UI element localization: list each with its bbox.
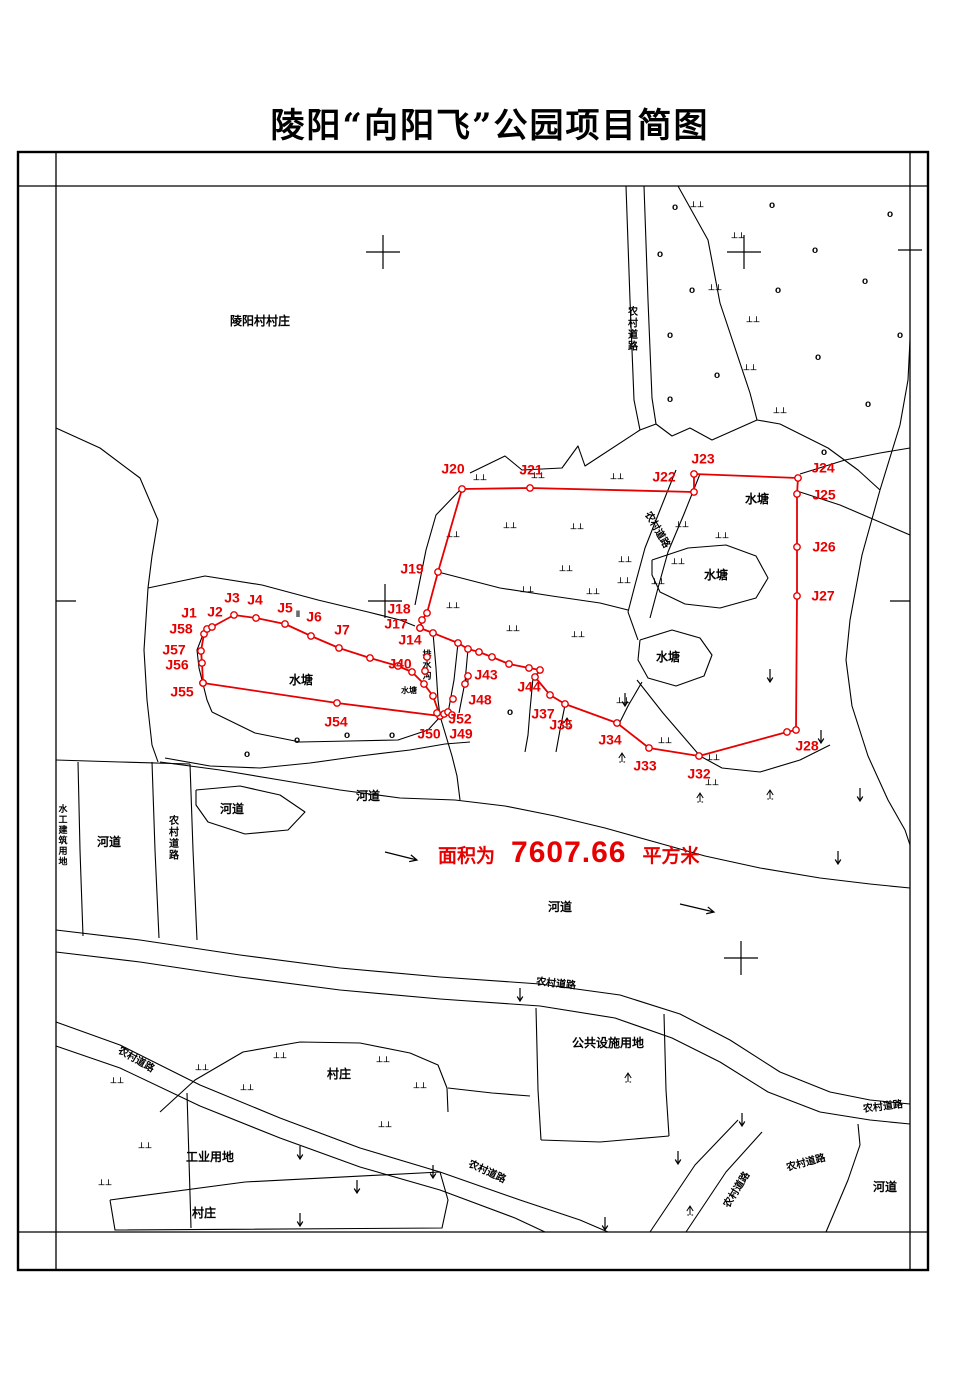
orchard-symbol: o bbox=[714, 370, 720, 381]
boundary-vertex bbox=[784, 729, 790, 735]
paddy-field-symbol: ⊥⊥ bbox=[273, 1051, 287, 1060]
point-label-J17: J17 bbox=[384, 616, 408, 632]
area-value: 7607.66 bbox=[511, 836, 626, 870]
tree-symbol bbox=[687, 1206, 693, 1215]
landuse-label-1: 水塘 bbox=[745, 491, 769, 506]
paddy-field-symbol: ⊥⊥ bbox=[413, 1081, 427, 1090]
orchard-symbol: o bbox=[657, 249, 663, 260]
boundary-vertex bbox=[489, 654, 495, 660]
point-label-J44: J44 bbox=[517, 679, 541, 695]
boundary-vertex bbox=[430, 630, 436, 636]
point-label-J7: J7 bbox=[334, 622, 350, 638]
land-boundary-line-33 bbox=[56, 930, 910, 1104]
boundary-vertex bbox=[476, 649, 482, 655]
boundary-vertex bbox=[199, 660, 205, 666]
point-label-J26: J26 bbox=[812, 539, 836, 555]
point-label-J4: J4 bbox=[247, 592, 263, 608]
land-boundary-line-38 bbox=[56, 1022, 608, 1232]
parcel-boundary-main bbox=[420, 474, 798, 756]
point-label-J49: J49 bbox=[449, 726, 473, 742]
point-label-J24: J24 bbox=[811, 460, 835, 476]
orchard-symbol: o bbox=[672, 202, 678, 213]
orchard-symbol: o bbox=[667, 394, 673, 405]
point-label-J5: J5 bbox=[277, 600, 293, 616]
point-label-J22: J22 bbox=[652, 469, 676, 485]
paddy-field-symbol: ⊥⊥ bbox=[559, 564, 573, 573]
orchard-symbol: o bbox=[862, 276, 868, 287]
paddy-field-symbol: ⊥⊥ bbox=[520, 585, 534, 594]
orchard-symbol: o bbox=[294, 735, 300, 746]
boundary-vertex bbox=[795, 475, 801, 481]
paddy-field-symbol: ⊥⊥ bbox=[503, 521, 517, 530]
boundary-vertex bbox=[253, 615, 259, 621]
paddy-field-symbol: ⊥⊥ bbox=[773, 406, 787, 415]
landuse-label-23: 农村道路 bbox=[784, 1150, 828, 1173]
point-label-J3: J3 bbox=[224, 590, 240, 606]
boundary-vertex bbox=[209, 624, 215, 630]
land-boundary-line-35 bbox=[536, 1008, 541, 1140]
land-boundary-line-26 bbox=[165, 742, 470, 768]
tree-symbol bbox=[767, 790, 773, 799]
point-label-J6: J6 bbox=[306, 609, 322, 625]
orchard-symbol: o bbox=[667, 330, 673, 341]
flow-direction-arrow bbox=[739, 1113, 745, 1126]
water-flow-arrow bbox=[680, 904, 714, 914]
orchard-symbol: o bbox=[821, 447, 827, 458]
landuse-label-0: 陵阳村村庄 bbox=[230, 313, 290, 328]
land-boundary-line-4 bbox=[880, 340, 910, 490]
paddy-field-symbol: ⊥⊥ bbox=[378, 1120, 392, 1129]
point-label-J33: J33 bbox=[633, 758, 657, 774]
land-boundary-line-21 bbox=[56, 760, 190, 764]
boundary-vertex bbox=[537, 667, 543, 673]
flow-direction-arrow bbox=[602, 1217, 608, 1230]
point-label-J2: J2 bbox=[207, 604, 223, 620]
land-boundary-line-7 bbox=[415, 490, 460, 605]
land-boundary-line-36 bbox=[664, 1014, 669, 1136]
land-boundary-line-6 bbox=[470, 430, 640, 473]
point-label-J48: J48 bbox=[468, 692, 492, 708]
land-boundary-line-37 bbox=[541, 1136, 669, 1142]
landuse-label-9: 河道 bbox=[219, 801, 244, 816]
boundary-vertex bbox=[794, 491, 800, 497]
paddy-field-symbol: ⊥⊥ bbox=[618, 555, 632, 564]
paddy-field-symbol: ⊥⊥ bbox=[651, 577, 665, 586]
boundary-vertex bbox=[450, 696, 456, 702]
point-label-J54: J54 bbox=[324, 714, 348, 730]
boundary-vertex bbox=[646, 745, 652, 751]
boundary-vertex bbox=[434, 710, 440, 716]
area-suffix: 平方米 bbox=[642, 841, 699, 868]
landuse-label-7: 农村道路 bbox=[627, 305, 639, 353]
land-boundary-line-41 bbox=[686, 1132, 762, 1232]
landuse-label-3: 水塘 bbox=[656, 649, 680, 664]
map-canvas: 陵阳村村庄水塘水塘水塘水塘水塘排水沟农村道路农村道路河道河道河道水工建筑用地农村… bbox=[0, 0, 980, 1386]
boundary-vertex bbox=[424, 654, 430, 660]
land-boundary-line-39 bbox=[56, 1046, 545, 1232]
orchard-symbol: o bbox=[507, 707, 513, 718]
flow-direction-arrow bbox=[354, 1180, 360, 1193]
boundary-vertex bbox=[336, 645, 342, 651]
flow-direction-arrow bbox=[297, 1213, 303, 1226]
parallel-tick-symbol: ‖ bbox=[296, 609, 300, 619]
flow-direction-arrow bbox=[297, 1146, 303, 1159]
point-label-J50: J50 bbox=[417, 726, 441, 742]
boundary-vertex bbox=[794, 593, 800, 599]
boundary-vertex bbox=[527, 485, 533, 491]
boundary-vertex bbox=[614, 720, 620, 726]
paddy-field-symbol: ⊥⊥ bbox=[675, 520, 689, 529]
point-label-J32: J32 bbox=[687, 766, 711, 782]
landuse-label-25: 河道 bbox=[872, 1179, 897, 1194]
paddy-field-symbol: ⊥⊥ bbox=[138, 1141, 152, 1150]
land-boundary-line-5 bbox=[846, 490, 910, 845]
point-label-J28: J28 bbox=[795, 738, 819, 754]
boundary-vertex bbox=[793, 727, 799, 733]
landuse-label-20: 村庄 bbox=[192, 1205, 216, 1220]
point-label-J27: J27 bbox=[811, 588, 835, 604]
boundary-vertex bbox=[417, 625, 423, 631]
landuse-label-14: 河道 bbox=[547, 899, 572, 914]
land-boundary-line-47 bbox=[56, 428, 158, 588]
point-label-J18: J18 bbox=[387, 601, 411, 617]
point-label-J23: J23 bbox=[691, 451, 715, 467]
boundary-vertex bbox=[462, 681, 468, 687]
paddy-field-symbol: ⊥⊥ bbox=[240, 1083, 254, 1092]
paddy-field-symbol: ⊥⊥ bbox=[715, 531, 729, 540]
boundary-vertex bbox=[421, 681, 427, 687]
land-boundary-line-24 bbox=[197, 632, 212, 712]
landuse-label-19: 工业用地 bbox=[186, 1149, 234, 1164]
orchard-symbol: o bbox=[344, 730, 350, 741]
area-annotation: 面积为 7607.66 平方米 bbox=[438, 836, 699, 870]
point-label-J55: J55 bbox=[170, 684, 194, 700]
paddy-field-symbol: ⊥⊥ bbox=[98, 1178, 112, 1187]
orchard-symbol: o bbox=[244, 749, 250, 760]
tree-symbol bbox=[619, 753, 625, 762]
boundary-vertex bbox=[308, 633, 314, 639]
point-label-J52: J52 bbox=[448, 711, 472, 727]
landuse-label-10: 河道 bbox=[355, 788, 380, 803]
paddy-field-symbol: ⊥⊥ bbox=[506, 624, 520, 633]
land-boundary-line-49 bbox=[448, 1088, 530, 1096]
point-label-J57: J57 bbox=[162, 642, 186, 658]
paddy-field-symbol: ⊥⊥ bbox=[473, 473, 487, 482]
land-boundary-line-13 bbox=[628, 612, 638, 640]
point-label-J19: J19 bbox=[400, 561, 424, 577]
boundary-vertex bbox=[231, 612, 237, 618]
landuse-label-17: 农村道路 bbox=[115, 1043, 158, 1075]
paddy-field-symbol: ⊥⊥ bbox=[731, 231, 745, 240]
land-boundary-line-1 bbox=[644, 186, 656, 424]
land-boundary-line-3 bbox=[640, 420, 880, 490]
tree-symbol bbox=[697, 793, 703, 802]
flow-direction-arrow bbox=[835, 851, 841, 864]
boundary-vertex bbox=[691, 471, 697, 477]
flow-direction-arrow bbox=[767, 669, 773, 682]
paddy-field-symbol: ⊥⊥ bbox=[658, 736, 672, 745]
point-label-J14: J14 bbox=[398, 632, 422, 648]
land-boundary-line-15 bbox=[637, 680, 830, 772]
boundary-vertex bbox=[430, 693, 436, 699]
map-frame-outer bbox=[18, 152, 928, 1270]
boundary-vertex bbox=[459, 486, 465, 492]
boundary-vertex bbox=[282, 621, 288, 627]
point-label-J56: J56 bbox=[165, 657, 189, 673]
boundary-vertex bbox=[465, 646, 471, 652]
paddy-field-symbol: ⊥⊥ bbox=[110, 1076, 124, 1085]
point-label-J1: J1 bbox=[181, 605, 197, 621]
boundary-vertex bbox=[422, 668, 428, 674]
land-boundary-line-17 bbox=[196, 786, 305, 834]
flow-direction-arrow bbox=[675, 1151, 681, 1164]
paddy-field-symbol: ⊥⊥ bbox=[746, 315, 760, 324]
water-flow-arrow bbox=[385, 852, 417, 862]
land-boundary-line-43 bbox=[160, 1042, 448, 1112]
paddy-field-symbol: ⊥⊥ bbox=[743, 363, 757, 372]
flow-direction-arrow bbox=[857, 788, 863, 801]
orchard-symbol: o bbox=[775, 285, 781, 296]
boundary-vertex bbox=[367, 655, 373, 661]
boundary-vertex bbox=[696, 753, 702, 759]
boundary-vertex bbox=[465, 673, 471, 679]
land-boundary-line-44 bbox=[110, 1172, 448, 1230]
landuse-label-4: 水塘 bbox=[289, 672, 313, 687]
point-label-J21: J21 bbox=[519, 462, 543, 478]
land-boundary-line-18 bbox=[78, 762, 83, 936]
orchard-symbol: o bbox=[887, 209, 893, 220]
boundary-vertex bbox=[198, 648, 204, 654]
area-prefix: 面积为 bbox=[438, 841, 495, 868]
boundary-vertex bbox=[455, 640, 461, 646]
landuse-label-16: 公共设施用地 bbox=[572, 1035, 644, 1050]
boundary-vertex bbox=[200, 680, 206, 686]
boundary-vertex bbox=[334, 700, 340, 706]
boundary-vertex bbox=[506, 661, 512, 667]
land-boundary-line-11 bbox=[650, 474, 700, 618]
land-boundary-line-19 bbox=[152, 762, 159, 938]
boundary-vertex bbox=[419, 617, 425, 623]
tree-symbol bbox=[625, 1073, 631, 1082]
paddy-field-symbol: ⊥⊥ bbox=[586, 587, 600, 596]
paddy-field-symbol: ⊥⊥ bbox=[671, 557, 685, 566]
paddy-field-symbol: ⊥⊥ bbox=[195, 1063, 209, 1072]
orchard-symbol: o bbox=[897, 330, 903, 341]
orchard-symbol: o bbox=[389, 730, 395, 741]
landuse-label-15: 农村道路 bbox=[535, 974, 578, 991]
orchard-symbol: o bbox=[689, 285, 695, 296]
paddy-field-symbol: ⊥⊥ bbox=[690, 200, 704, 209]
point-label-J25: J25 bbox=[812, 487, 836, 503]
paddy-field-symbol: ⊥⊥ bbox=[571, 630, 585, 639]
landuse-label-13: 农村道路 bbox=[168, 814, 180, 862]
land-boundary-line-2 bbox=[678, 186, 757, 420]
orchard-symbol: o bbox=[815, 352, 821, 363]
point-label-J58: J58 bbox=[169, 621, 193, 637]
flow-direction-arrow bbox=[517, 988, 523, 1001]
orchard-symbol: o bbox=[865, 399, 871, 410]
landuse-label-11: 河道 bbox=[96, 834, 121, 849]
boundary-vertex bbox=[435, 569, 441, 575]
landuse-label-5: 水塘 bbox=[400, 685, 417, 695]
point-label-J20: J20 bbox=[441, 461, 465, 477]
paddy-field-symbol: ⊥⊥ bbox=[570, 522, 584, 531]
paddy-field-symbol: ⊥⊥ bbox=[708, 283, 722, 292]
boundary-vertex bbox=[794, 544, 800, 550]
point-label-J40: J40 bbox=[388, 656, 412, 672]
orchard-symbol: o bbox=[769, 200, 775, 211]
land-boundary-line-22 bbox=[144, 588, 158, 762]
flow-direction-arrow bbox=[818, 730, 824, 743]
land-boundary-line-42 bbox=[826, 1124, 860, 1232]
boundary-vertex bbox=[691, 489, 697, 495]
paddy-field-symbol: ⊥⊥ bbox=[376, 1055, 390, 1064]
boundary-vertex bbox=[562, 701, 568, 707]
point-label-J37: J37 bbox=[531, 706, 555, 722]
boundary-vertex bbox=[424, 610, 430, 616]
landuse-label-2: 水塘 bbox=[704, 567, 728, 582]
point-label-J43: J43 bbox=[474, 667, 498, 683]
map-page: 陵阳“向阳飞”公园项目简图 陵阳村村庄水塘水塘水塘水塘水塘排水沟农村道路农村道路… bbox=[0, 0, 980, 1386]
landuse-label-21: 农村道路 bbox=[466, 1156, 510, 1186]
orchard-symbol: o bbox=[812, 245, 818, 256]
boundary-vertex bbox=[526, 665, 532, 671]
landuse-label-12: 水工建筑用地 bbox=[57, 803, 68, 867]
boundary-vertex bbox=[547, 692, 553, 698]
paddy-field-symbol: ⊥⊥ bbox=[617, 576, 631, 585]
paddy-field-symbol: ⊥⊥ bbox=[610, 472, 624, 481]
flow-direction-arrow bbox=[430, 1165, 436, 1178]
landuse-label-18: 村庄 bbox=[327, 1066, 351, 1081]
paddy-field-symbol: ⊥⊥ bbox=[446, 601, 460, 610]
point-label-J34: J34 bbox=[598, 732, 622, 748]
